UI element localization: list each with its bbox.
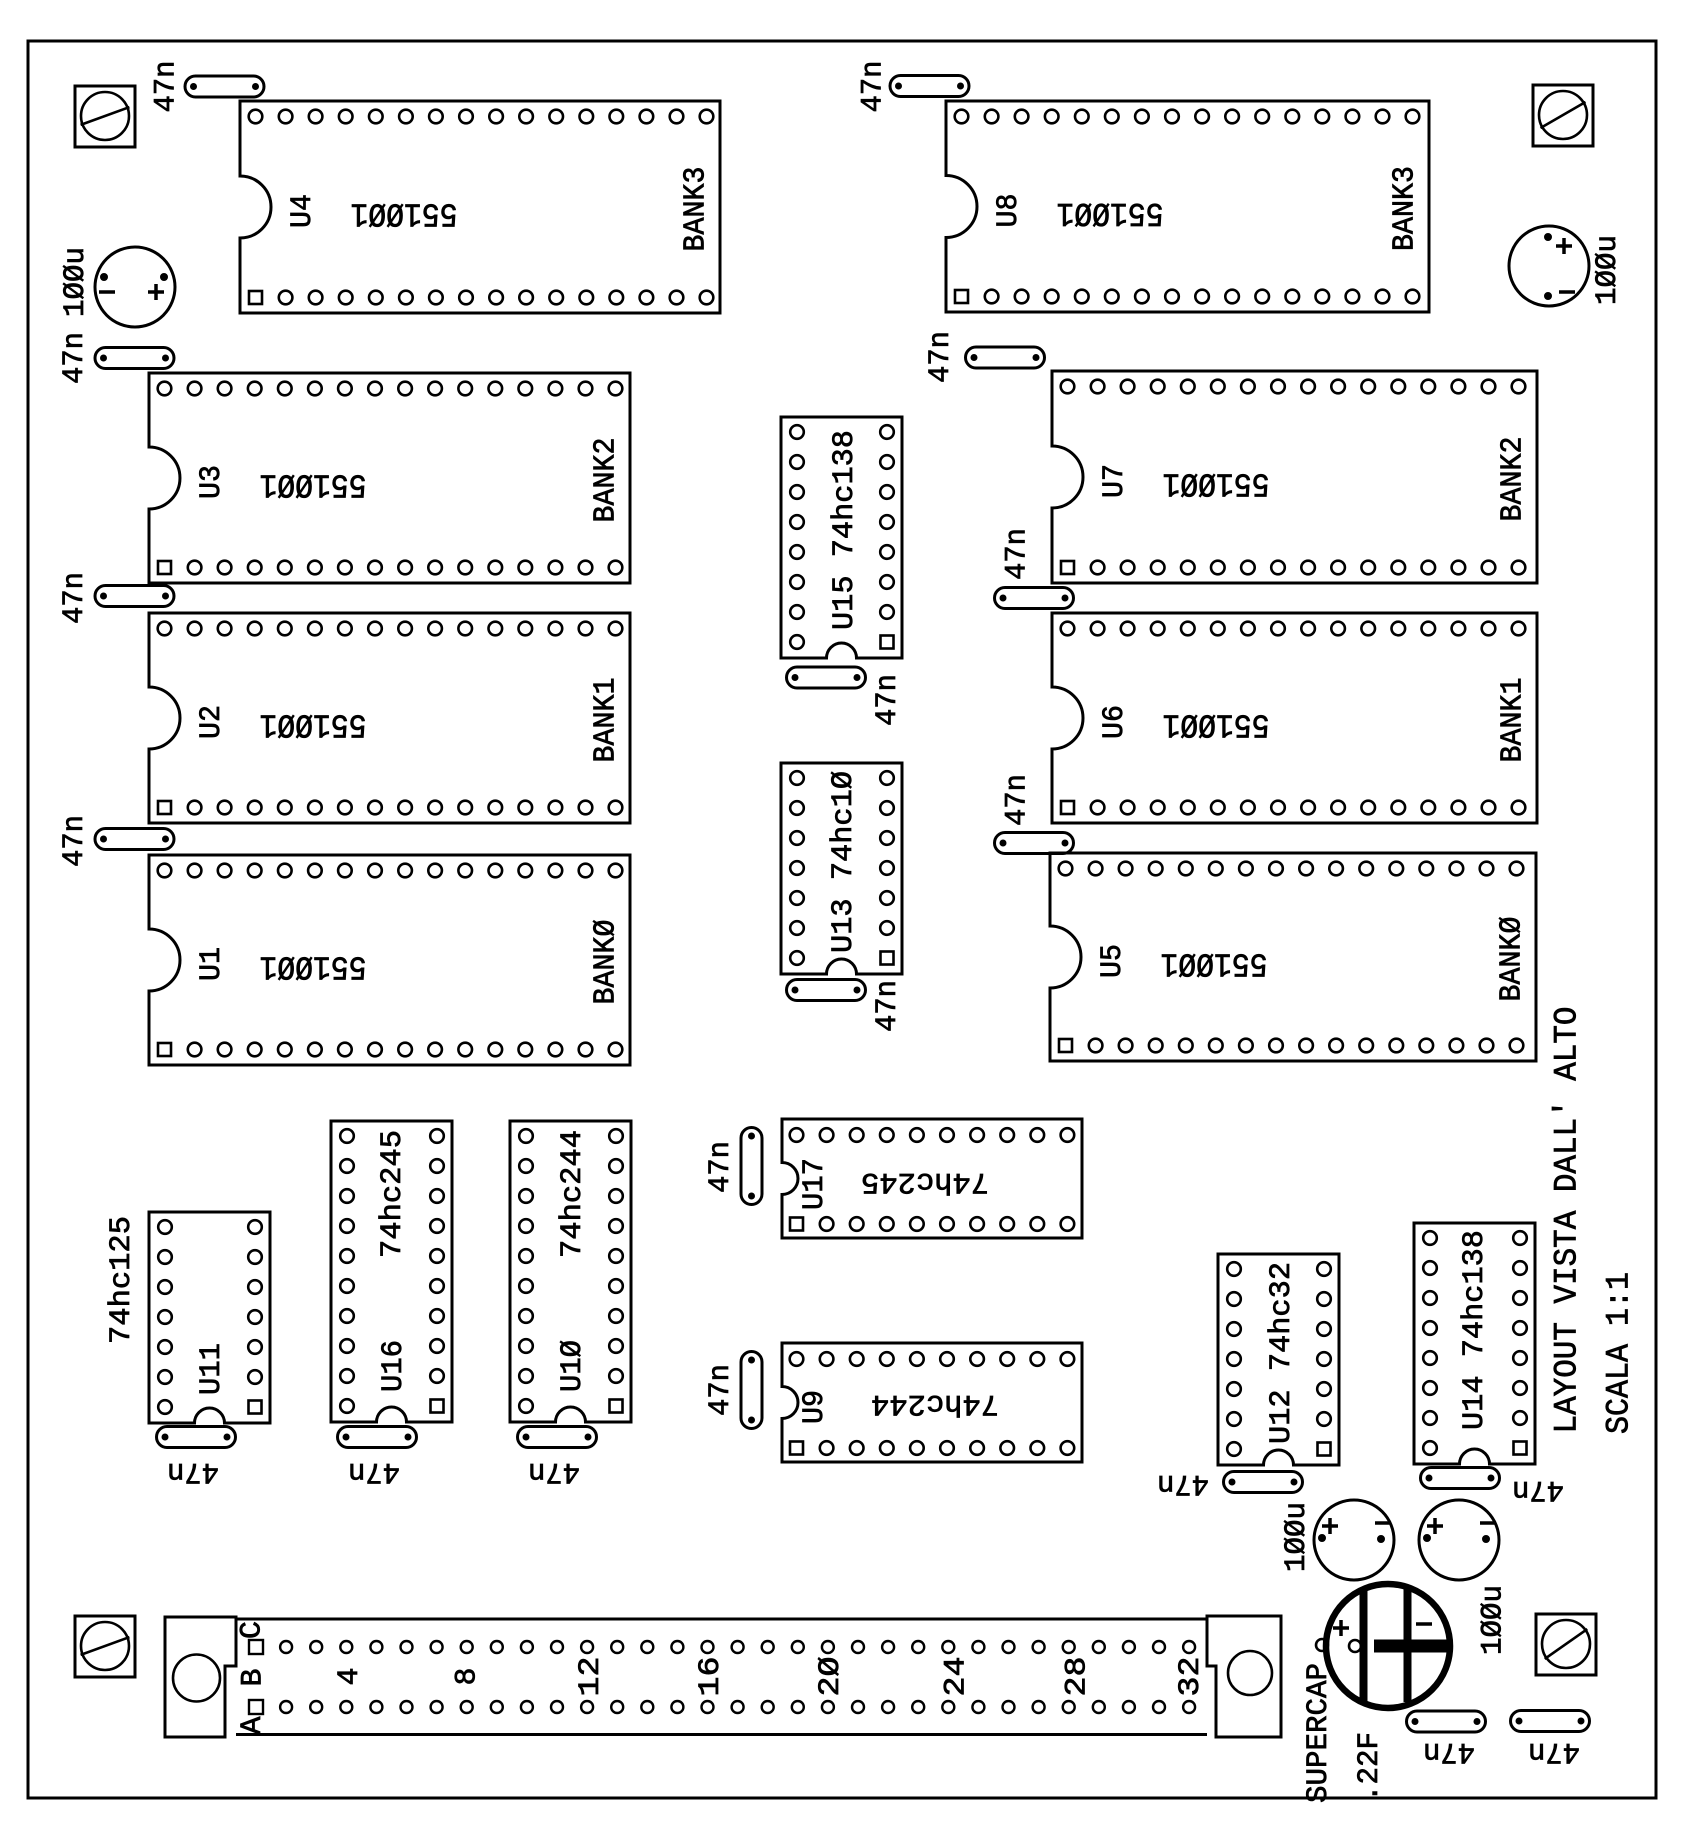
svg-text:74hc245: 74hc245 — [861, 1164, 989, 1198]
svg-text:1ØØu: 1ØØu — [59, 247, 93, 317]
svg-text:28: 28 — [1061, 1657, 1095, 1697]
svg-text:47n: 47n — [924, 331, 958, 383]
svg-text:24: 24 — [939, 1657, 973, 1697]
svg-text:BANK3: BANK3 — [1388, 166, 1423, 251]
svg-text:47n: 47n — [58, 815, 92, 867]
svg-text:47n: 47n — [1157, 1466, 1209, 1500]
svg-text:BANK1: BANK1 — [589, 678, 624, 763]
svg-text:BANK2: BANK2 — [1496, 437, 1531, 522]
svg-text:47n: 47n — [1528, 1734, 1580, 1768]
svg-text:47n: 47n — [857, 61, 891, 113]
svg-text:C: C — [236, 1621, 270, 1639]
svg-text:1ØØu: 1ØØu — [1591, 235, 1625, 305]
svg-text:U13 74hc1Ø: U13 74hc1Ø — [827, 771, 861, 953]
svg-text:47n: 47n — [1001, 528, 1035, 580]
svg-text:551ØØ1: 551ØØ1 — [351, 195, 458, 232]
svg-text:U14 74hc138: U14 74hc138 — [1458, 1230, 1492, 1430]
svg-text:47n: 47n — [704, 1141, 738, 1193]
svg-text:551ØØ1: 551ØØ1 — [1161, 945, 1268, 982]
svg-text:551ØØ1: 551ØØ1 — [260, 948, 367, 985]
svg-text:551ØØ1: 551ØØ1 — [260, 466, 367, 503]
svg-text:32: 32 — [1174, 1657, 1208, 1697]
svg-text:74hc245: 74hc245 — [376, 1130, 410, 1258]
svg-text:U16: U16 — [377, 1340, 411, 1392]
svg-text:U4: U4 — [286, 194, 320, 228]
svg-text:A: A — [236, 1716, 270, 1734]
svg-text:47n: 47n — [1001, 774, 1035, 826]
svg-text:B: B — [237, 1668, 271, 1686]
svg-text:U5: U5 — [1096, 944, 1130, 978]
svg-text:U17: U17 — [798, 1158, 832, 1210]
svg-text:BANK1: BANK1 — [1496, 678, 1531, 763]
svg-text:2Ø: 2Ø — [814, 1657, 848, 1697]
svg-text:BANK3: BANK3 — [679, 167, 714, 252]
svg-text:U8: U8 — [992, 194, 1026, 228]
svg-text:BANKØ: BANKØ — [1495, 917, 1530, 1002]
svg-text:47n: 47n — [167, 1454, 219, 1488]
svg-text:551ØØ1: 551ØØ1 — [1163, 465, 1270, 502]
svg-text:551ØØ1: 551ØØ1 — [1163, 706, 1270, 743]
svg-text:16: 16 — [694, 1657, 728, 1697]
svg-text:47n: 47n — [871, 674, 905, 726]
svg-text:8: 8 — [451, 1667, 485, 1685]
svg-text:U1: U1 — [195, 947, 229, 981]
svg-text:BANKØ: BANKØ — [589, 920, 624, 1005]
svg-text:47n: 47n — [871, 980, 905, 1032]
svg-text:4: 4 — [333, 1667, 367, 1685]
svg-text:74hc244: 74hc244 — [556, 1130, 590, 1258]
svg-text:47n: 47n — [1512, 1472, 1564, 1506]
svg-text:551ØØ1: 551ØØ1 — [1057, 194, 1164, 231]
svg-text:1ØØu: 1ØØu — [1280, 1502, 1314, 1572]
svg-text:U9: U9 — [798, 1390, 832, 1424]
svg-text:SUPERCAP: SUPERCAP — [1302, 1663, 1336, 1803]
svg-text:U6: U6 — [1098, 705, 1132, 739]
svg-text:551ØØ1: 551ØØ1 — [260, 706, 367, 743]
svg-text:47n: 47n — [58, 572, 92, 624]
svg-text:47n: 47n — [528, 1454, 580, 1488]
svg-text:1ØØu: 1ØØu — [1477, 1585, 1511, 1655]
svg-text:47n: 47n — [150, 61, 184, 113]
svg-text:47n: 47n — [1423, 1734, 1475, 1768]
svg-text:.22F: .22F — [1353, 1732, 1387, 1802]
svg-text:U12 74hc32: U12 74hc32 — [1265, 1262, 1299, 1444]
svg-text:47n: 47n — [58, 332, 92, 384]
svg-text:47n: 47n — [348, 1454, 400, 1488]
svg-text:SCALA 1:1: SCALA 1:1 — [1601, 1272, 1638, 1434]
svg-text:12: 12 — [574, 1657, 608, 1697]
svg-text:74hc125: 74hc125 — [105, 1216, 139, 1344]
svg-text:U3: U3 — [195, 465, 229, 499]
svg-text:U15 74hc138: U15 74hc138 — [828, 430, 862, 630]
svg-text:74hc244: 74hc244 — [871, 1386, 999, 1420]
svg-text:U1Ø: U1Ø — [556, 1340, 590, 1392]
svg-text:U7: U7 — [1098, 464, 1132, 498]
svg-text:U11: U11 — [195, 1343, 229, 1395]
svg-text:LAYOUT VISTA DALL' ALTO: LAYOUT VISTA DALL' ALTO — [1549, 1007, 1586, 1434]
svg-text:U2: U2 — [195, 705, 229, 739]
svg-text:47n: 47n — [704, 1364, 738, 1416]
svg-text:BANK2: BANK2 — [589, 438, 624, 523]
